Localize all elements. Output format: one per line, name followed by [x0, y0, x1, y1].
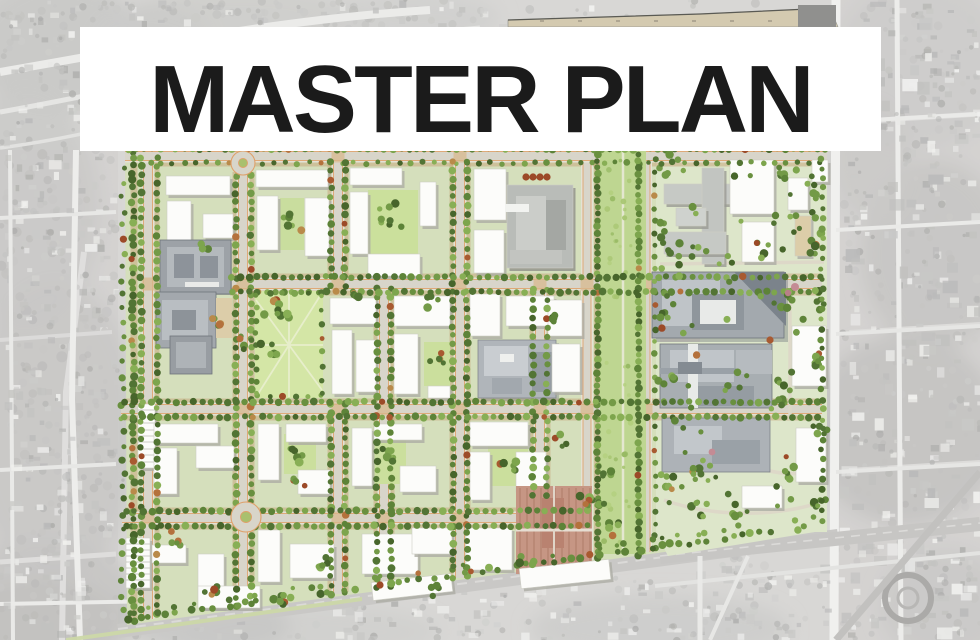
svg-text:MASTER PLAN: MASTER PLAN — [149, 46, 812, 153]
